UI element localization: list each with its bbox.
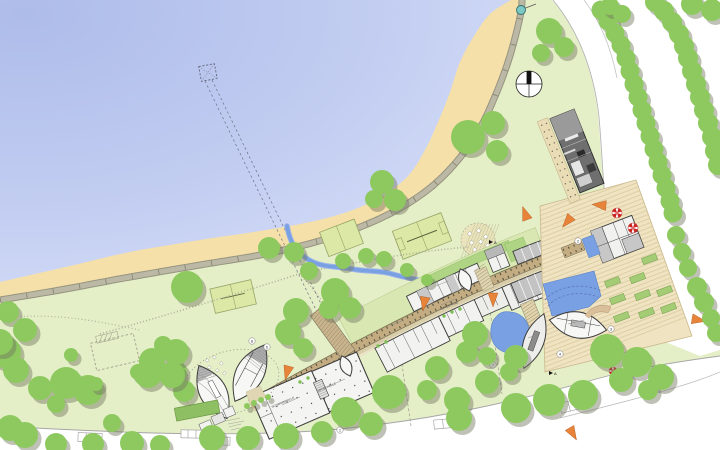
svg-text:A: A <box>554 371 557 376</box>
svg-text:A: A <box>494 240 497 245</box>
